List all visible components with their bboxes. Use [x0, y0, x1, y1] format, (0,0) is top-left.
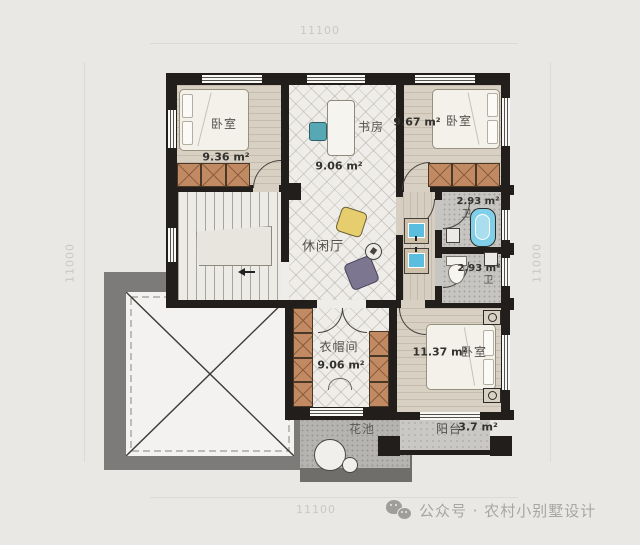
- wardrobe-cell: [369, 331, 389, 356]
- area-bath-lower: 2.93 m²: [458, 264, 501, 274]
- dimension-line-top: [150, 43, 518, 44]
- window: [168, 110, 176, 148]
- label-bedroom-tl: 卧室: [211, 118, 237, 130]
- dimension-line-left: [84, 62, 85, 462]
- wardrobe: [428, 163, 500, 187]
- window: [415, 75, 475, 83]
- window: [502, 210, 510, 240]
- wardrobe-cell: [226, 163, 250, 187]
- shower-fixture: [446, 228, 460, 243]
- window: [502, 98, 510, 146]
- window: [502, 335, 510, 390]
- window: [202, 75, 262, 83]
- wardrobe-cell: [369, 356, 389, 381]
- label-study: 书房: [358, 121, 384, 133]
- pillow: [487, 120, 498, 144]
- window: [168, 228, 176, 262]
- wardrobe-cell: [369, 382, 389, 407]
- area-balcony: 3.7 m²: [458, 422, 498, 433]
- dim-bottom: 11100: [296, 503, 336, 516]
- label-bedroom-br: 卧室: [461, 346, 487, 358]
- fixture-glyph: [370, 247, 378, 255]
- wardrobe: [293, 308, 313, 407]
- area-bedroom-br: 11.37 m²: [413, 347, 468, 358]
- lamp-icon: [488, 313, 497, 322]
- bathtub-inner: [475, 214, 490, 240]
- pilaster: [501, 410, 514, 420]
- watermark-text: 公众号 · 农村小别墅设计: [419, 500, 596, 521]
- label-bedroom-tr: 卧室: [446, 115, 472, 127]
- nightstand-lamp: [483, 310, 501, 325]
- pilaster: [501, 243, 514, 255]
- wardrobe-cell: [293, 333, 313, 358]
- lamp-icon: [488, 391, 497, 400]
- label-flower-bed: 花池: [349, 423, 375, 435]
- wardrobe-cell: [293, 308, 313, 333]
- door-opening: [435, 258, 442, 286]
- faucet: [415, 247, 417, 252]
- balcony-rail: [400, 450, 490, 455]
- pillow: [182, 121, 193, 145]
- sink-basin: [408, 253, 425, 268]
- pillow: [487, 93, 498, 117]
- window: [307, 75, 365, 83]
- dim-left: 11000: [64, 243, 77, 283]
- desk: [327, 100, 355, 156]
- bathtub: [470, 208, 496, 247]
- window: [420, 412, 480, 420]
- wechat-bubble-small: [397, 507, 412, 520]
- wardrobe-cell: [293, 358, 313, 383]
- dimension-line-right: [550, 62, 551, 462]
- label-bath-lower: 卫: [484, 276, 495, 286]
- area-bedroom-tr: 9.67 m²: [393, 117, 440, 128]
- pillow: [483, 359, 494, 385]
- light-fixture-icon: [365, 243, 382, 260]
- balcony-post-right: [490, 436, 512, 456]
- sink-counter: [404, 218, 429, 244]
- watermark: 公众号 · 农村小别墅设计: [386, 498, 596, 522]
- wall-stub: [281, 183, 301, 200]
- door-opening: [435, 200, 442, 230]
- label-leisure-hall: 休闲厅: [302, 241, 344, 254]
- label-cloakroom: 衣帽间: [319, 341, 358, 353]
- stair-direction-arrow: [238, 268, 245, 276]
- door-opening-double: [317, 300, 366, 308]
- opening-stairs-hall: [281, 262, 289, 300]
- roof-void-cross: [126, 292, 294, 456]
- area-study: 9.06 m²: [315, 161, 362, 172]
- wechat-icon: [386, 498, 412, 522]
- area-cloakroom: 9.06 m²: [317, 360, 364, 371]
- area-bath-upper: 2.93 m²: [457, 197, 500, 207]
- wardrobe: [369, 331, 389, 407]
- label-bath-upper: 卫: [462, 210, 473, 220]
- window: [502, 258, 510, 286]
- pilaster: [501, 185, 514, 195]
- nightstand-lamp: [483, 388, 501, 403]
- faucet: [415, 236, 417, 241]
- blanket-fold: [197, 93, 211, 147]
- wardrobe-cell: [428, 163, 452, 187]
- dim-top: 11100: [300, 24, 340, 37]
- planter-small: [342, 457, 358, 473]
- wardrobe: [177, 163, 250, 187]
- door-opening: [396, 197, 403, 235]
- window: [310, 408, 363, 416]
- wardrobe-cell: [293, 382, 313, 407]
- stair-landing: [196, 226, 272, 266]
- wardrobe-cell: [452, 163, 476, 187]
- desk-chair: [309, 122, 327, 141]
- pilaster: [501, 298, 514, 310]
- sink-counter: [404, 248, 429, 274]
- wardrobe-cell: [177, 163, 201, 187]
- roof-void: [126, 292, 294, 456]
- wardrobe-cell: [201, 163, 225, 187]
- wardrobe-cell: [476, 163, 500, 187]
- door-opening: [401, 300, 425, 308]
- pillow: [182, 94, 193, 118]
- floor-plan: 11100 11100 11000 11000 花池 阳台 3.7 m²: [0, 0, 640, 545]
- area-bedroom-tl: 9.36 m²: [202, 152, 249, 163]
- balcony-post-left: [378, 436, 400, 456]
- dim-right: 11000: [531, 243, 544, 283]
